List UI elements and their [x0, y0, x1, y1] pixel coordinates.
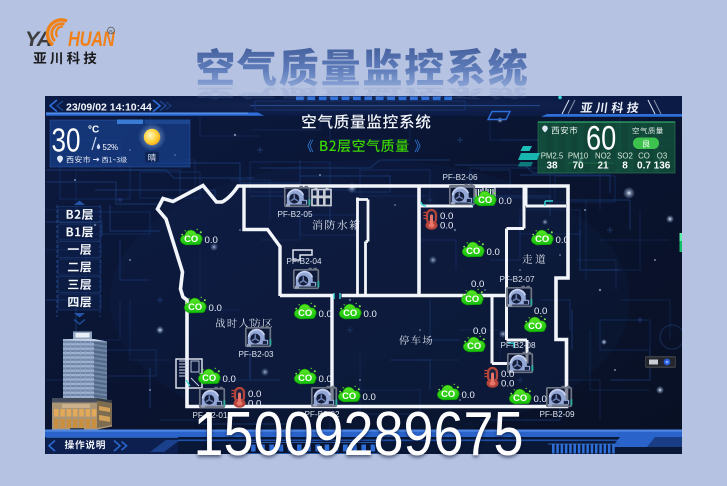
svg-text:0.0: 0.0	[440, 221, 453, 232]
svg-text:0.0: 0.0	[223, 374, 236, 385]
svg-text:52%: 52%	[103, 143, 119, 152]
svg-text:PF-B2-06: PF-B2-06	[442, 173, 477, 182]
svg-text:PF-B2-03: PF-B2-03	[238, 350, 273, 359]
svg-text:0.0: 0.0	[473, 326, 486, 337]
svg-text:PM2.5: PM2.5	[541, 152, 564, 161]
svg-text:70: 70	[572, 161, 584, 172]
svg-text:°C: °C	[88, 125, 99, 136]
svg-text:0.0: 0.0	[205, 235, 218, 246]
svg-text:0.0: 0.0	[534, 306, 547, 317]
svg-text:SO2: SO2	[617, 152, 633, 161]
svg-text:0.0: 0.0	[364, 309, 377, 320]
svg-text:PF-B2-07: PF-B2-07	[499, 275, 534, 284]
svg-text:0.0: 0.0	[319, 374, 332, 385]
svg-text:0.0: 0.0	[556, 235, 569, 246]
svg-text:8: 8	[622, 161, 628, 172]
svg-text:PF-B2-09: PF-B2-09	[539, 410, 574, 419]
svg-text:30: 30	[52, 123, 81, 160]
svg-text:0.0: 0.0	[501, 379, 514, 390]
svg-text:R: R	[109, 29, 113, 35]
svg-text:15009289675: 15009289675	[194, 400, 524, 469]
svg-text:CO: CO	[638, 152, 650, 161]
svg-text:0.0: 0.0	[534, 394, 547, 405]
svg-text:PF-B2-08: PF-B2-08	[500, 341, 535, 350]
svg-text:0.0: 0.0	[471, 279, 484, 290]
svg-text:PM10: PM10	[568, 152, 589, 161]
svg-text:38: 38	[546, 161, 558, 172]
svg-text:136: 136	[654, 161, 671, 172]
svg-text:PF-B2-04: PF-B2-04	[286, 257, 321, 266]
svg-text:0.7: 0.7	[637, 161, 651, 172]
svg-text:23/09/02 14:10:44: 23/09/02 14:10:44	[66, 102, 152, 114]
svg-text:PF-B2-05: PF-B2-05	[277, 210, 312, 219]
svg-text:NO2: NO2	[595, 152, 611, 161]
svg-text:0.0: 0.0	[209, 303, 222, 314]
svg-text:O3: O3	[657, 152, 667, 161]
svg-text:21: 21	[597, 161, 609, 172]
svg-text:0.0: 0.0	[319, 309, 332, 320]
svg-text:0.0: 0.0	[499, 196, 512, 207]
svg-text:0.0: 0.0	[487, 247, 500, 258]
